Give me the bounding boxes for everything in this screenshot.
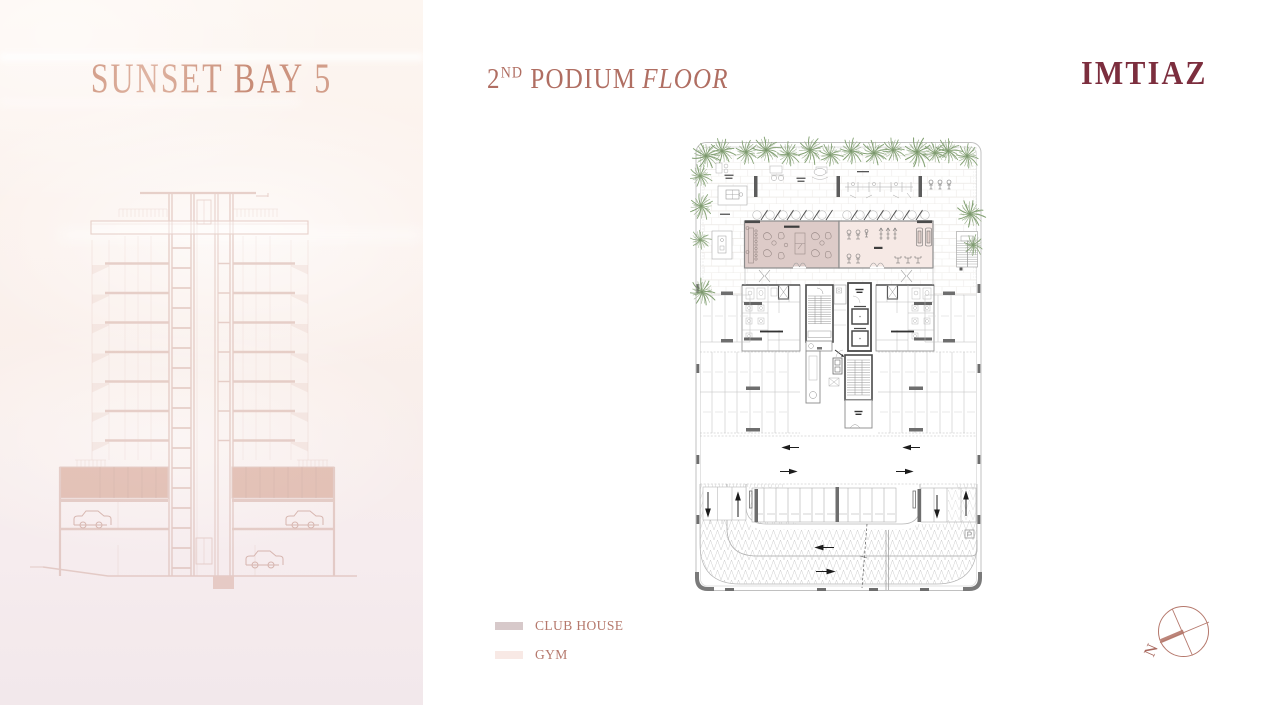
svg-text:N: N: [1140, 641, 1162, 660]
